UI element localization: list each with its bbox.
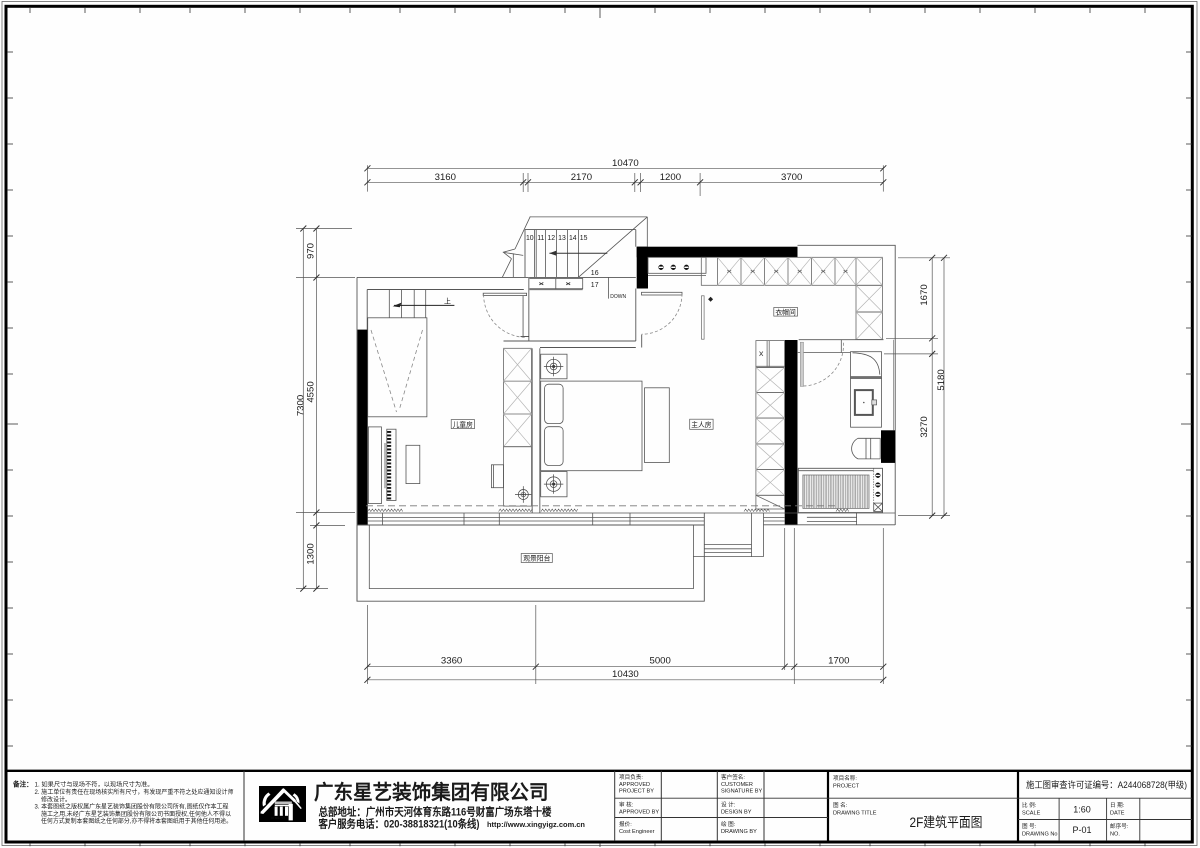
svg-text:绘 图:: 绘 图: <box>721 820 736 828</box>
svg-text:5180: 5180 <box>936 369 947 390</box>
svg-text:衣帽间: 衣帽间 <box>775 307 796 316</box>
svg-text:客户签名:: 客户签名: <box>721 773 745 781</box>
svg-text:DRAWING BY: DRAWING BY <box>721 829 757 835</box>
svg-text:上: 上 <box>444 297 451 306</box>
svg-text:2170: 2170 <box>571 172 592 183</box>
svg-text:15: 15 <box>580 235 588 242</box>
svg-text:邮序号:: 邮序号: <box>1110 822 1129 830</box>
svg-text:4550: 4550 <box>306 381 317 402</box>
svg-text:儿童房: 儿童房 <box>453 420 474 429</box>
svg-text:3270: 3270 <box>919 416 930 437</box>
svg-text:3. 本套图纸之版权属广东星艺装饰集团股份有限公司所有,图纸: 3. 本套图纸之版权属广东星艺装饰集团股份有限公司所有,图纸仅作本工程 <box>35 803 229 811</box>
svg-text:1:60: 1:60 <box>1073 805 1091 815</box>
svg-text:备注：: 备注： <box>12 780 33 789</box>
svg-text:XING YI: XING YI <box>271 816 285 820</box>
svg-text:项目名称:: 项目名称: <box>833 774 857 782</box>
svg-text:DATE: DATE <box>1110 811 1125 817</box>
svg-text:APPROVED: APPROVED <box>619 782 650 788</box>
svg-text:1670: 1670 <box>919 284 930 305</box>
svg-text:2. 施工单位有责任在现场核实所有尺寸，有发现严重不符之处应: 2. 施工单位有责任在现场核实所有尺寸，有发现严重不符之处应通知设计师 <box>35 788 234 796</box>
svg-text:1200: 1200 <box>660 172 681 183</box>
svg-text:PROJECT BY: PROJECT BY <box>619 789 654 795</box>
svg-text:修改设计。: 修改设计。 <box>41 795 71 803</box>
svg-text:2F建筑平面图: 2F建筑平面图 <box>910 815 983 830</box>
svg-text:Cost Engineer: Cost Engineer <box>619 829 655 835</box>
svg-text:NO.: NO. <box>1110 832 1120 838</box>
svg-text:图 号:: 图 号: <box>1022 822 1037 830</box>
svg-text:1. 如果尺寸与现场不符，以现场尺寸为准。: 1. 如果尺寸与现场不符，以现场尺寸为准。 <box>35 781 154 789</box>
svg-text:审 核:: 审 核: <box>619 801 634 809</box>
svg-text:12: 12 <box>547 235 555 242</box>
svg-text:3160: 3160 <box>435 172 456 183</box>
svg-text:11: 11 <box>537 235 544 242</box>
svg-text:DESIGN BY: DESIGN BY <box>721 810 752 816</box>
svg-text:17: 17 <box>591 282 599 289</box>
svg-text:http://www.xingyigz.com.cn: http://www.xingyigz.com.cn <box>487 820 585 829</box>
svg-text:CUSTOMER: CUSTOMER <box>721 782 753 788</box>
svg-text:观景阳台: 观景阳台 <box>523 554 550 563</box>
svg-text:设 计:: 设 计: <box>721 801 736 809</box>
svg-text:施工之用,未经广东星艺装饰集团股份有限公司书面授权,任何他人: 施工之用,未经广东星艺装饰集团股份有限公司书面授权,任何他人不得以 <box>41 810 231 818</box>
svg-text:10470: 10470 <box>612 158 639 169</box>
svg-text:任何方式复制本套图纸之任何部分,亦不得将本套图纸用于其他任何: 任何方式复制本套图纸之任何部分,亦不得将本套图纸用于其他任何用途。 <box>41 817 232 825</box>
svg-text:图 名:: 图 名: <box>833 801 848 809</box>
svg-text:DRAWING TITLE: DRAWING TITLE <box>833 811 877 817</box>
svg-text:客户服务电话：020-38818321(10条线): 客户服务电话：020-38818321(10条线) <box>318 817 480 831</box>
svg-text:SIGNATURE BY: SIGNATURE BY <box>721 789 763 795</box>
svg-text:PROJECT: PROJECT <box>833 784 860 790</box>
svg-text:比 例:: 比 例: <box>1022 801 1037 809</box>
svg-text:970: 970 <box>306 243 317 259</box>
svg-text:日 期:: 日 期: <box>1110 802 1125 809</box>
svg-text:5000: 5000 <box>650 656 671 667</box>
svg-text:10430: 10430 <box>612 669 639 680</box>
svg-text:主人房: 主人房 <box>691 420 712 429</box>
svg-text:总部地址：广州市天河体育东路116号财富广场东塔十楼: 总部地址：广州市天河体育东路116号财富广场东塔十楼 <box>319 805 552 819</box>
svg-text:SCALE: SCALE <box>1022 811 1041 817</box>
svg-text:1300: 1300 <box>306 543 317 564</box>
svg-text:DOWN: DOWN <box>610 294 626 300</box>
svg-text:1700: 1700 <box>828 656 849 667</box>
svg-text:DRAWING No: DRAWING No <box>1022 832 1058 838</box>
svg-text:16: 16 <box>591 270 599 277</box>
svg-text:APPROVED BY: APPROVED BY <box>619 810 659 816</box>
svg-text:10: 10 <box>526 235 534 242</box>
svg-text:3700: 3700 <box>781 172 802 183</box>
svg-text:P-01: P-01 <box>1072 825 1091 835</box>
svg-text:3360: 3360 <box>441 656 462 667</box>
svg-text:14: 14 <box>569 235 577 242</box>
svg-text:项目负责:: 项目负责: <box>619 773 643 781</box>
svg-text:广东星艺装饰集团有限公司: 广东星艺装饰集团有限公司 <box>314 780 549 804</box>
svg-text:施工图审查许可证编号：A244068728(甲级): 施工图审查许可证编号：A244068728(甲级) <box>1026 779 1187 790</box>
svg-text:13: 13 <box>558 235 566 242</box>
svg-text:报价:: 报价: <box>619 820 632 828</box>
